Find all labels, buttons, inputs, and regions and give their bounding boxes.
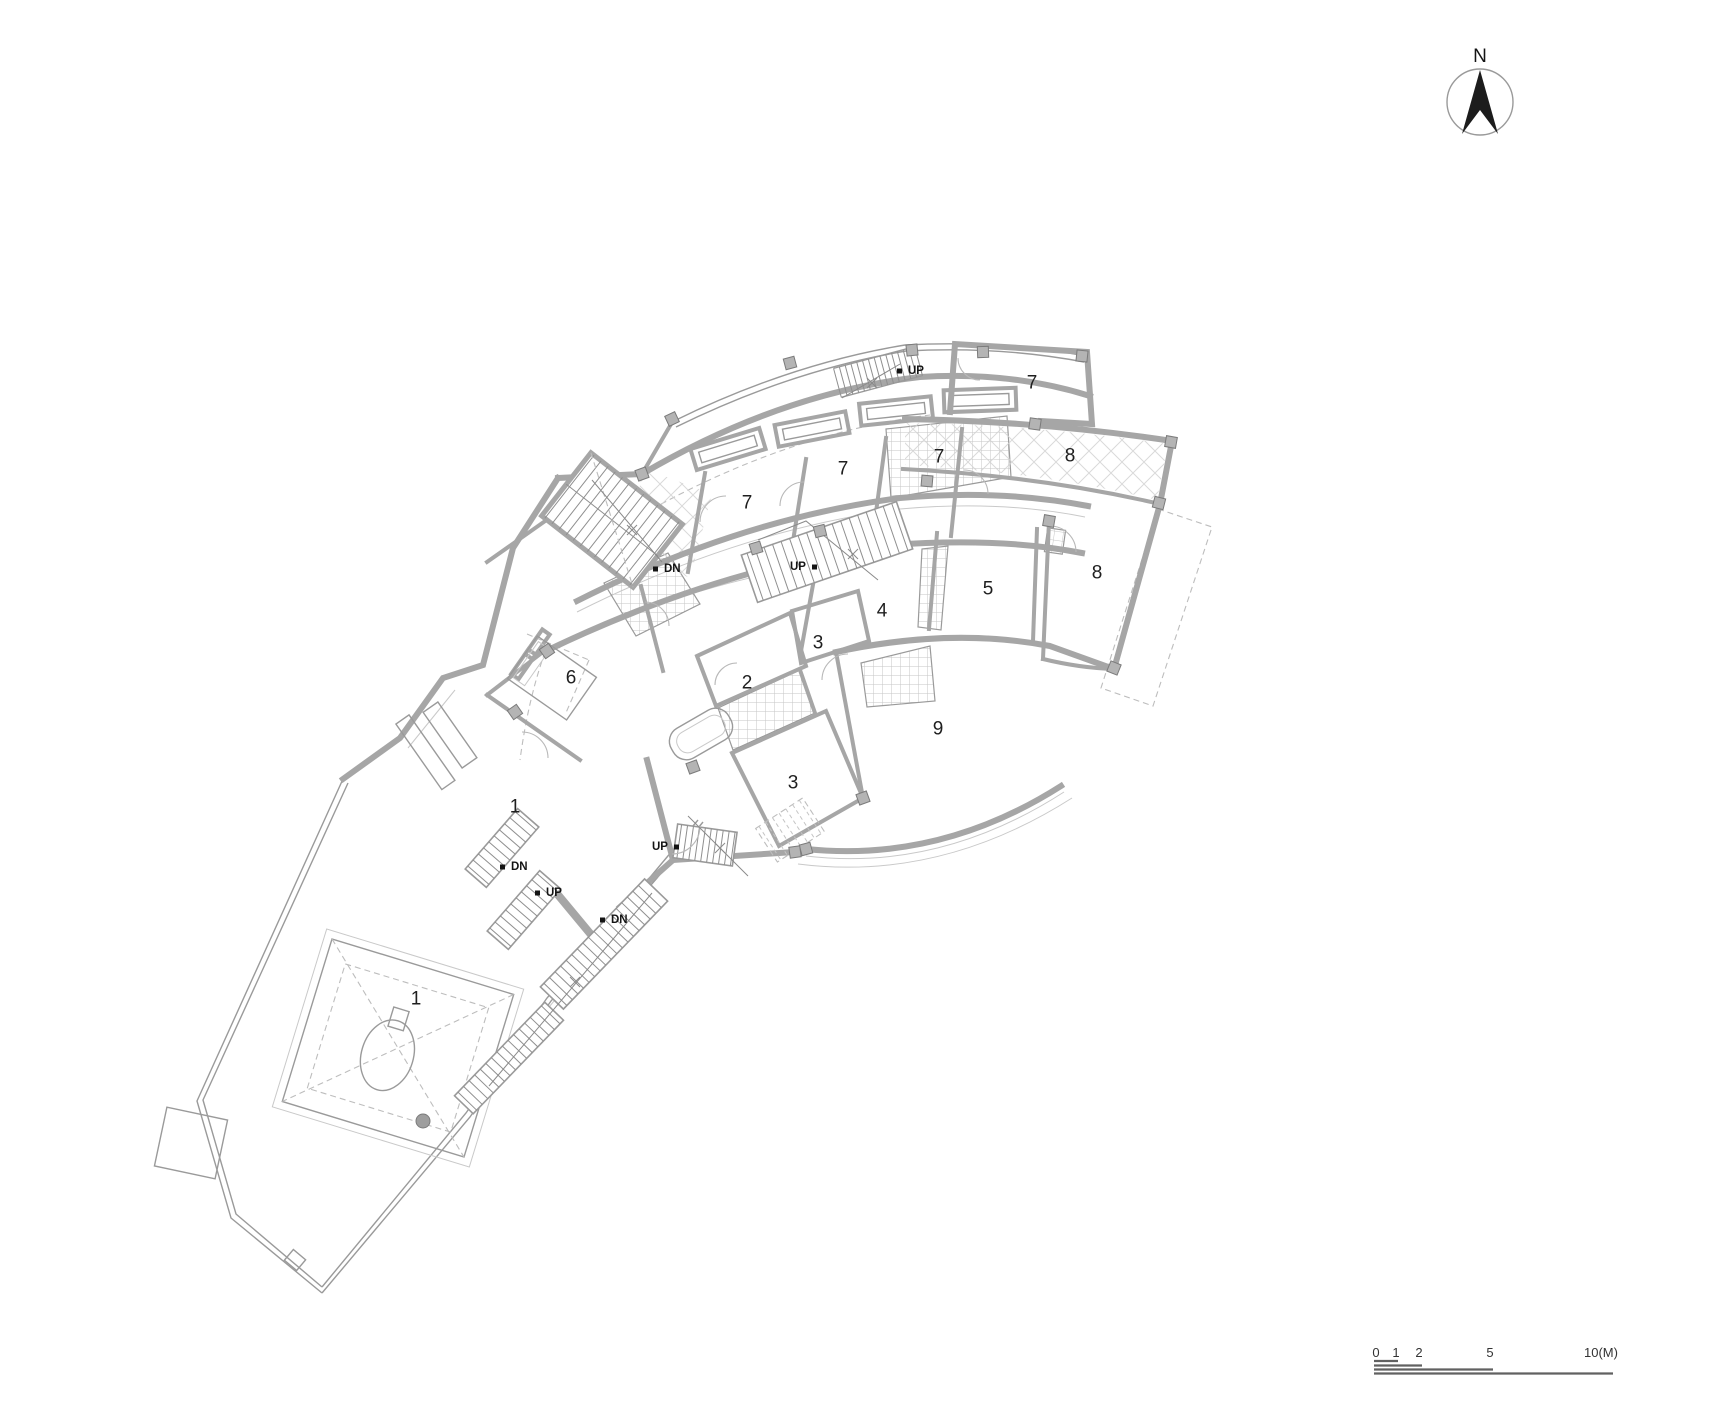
room-label-3: 3	[788, 773, 799, 794]
stair-label-dn: DN	[511, 861, 528, 873]
scale-label-5: 5	[1486, 1345, 1493, 1360]
stair-label-dn: DN	[664, 563, 681, 575]
stair-label-dot	[500, 865, 505, 870]
wing-terrace-deck	[272, 929, 523, 1167]
room-label-2: 2	[742, 673, 753, 694]
floor-plan-canvas: 777788543263911 UPDNUPUPDNUPDN N 012510(…	[0, 0, 1732, 1414]
stair-label-up: UP	[652, 841, 668, 853]
room-label-7: 7	[1027, 373, 1038, 394]
scale-bar-labels: 012510(M)	[1372, 1345, 1618, 1360]
room-label-1: 1	[510, 797, 521, 818]
north-compass: N	[1447, 46, 1513, 135]
room-label-6: 6	[566, 668, 577, 689]
scale-label-1: 1	[1392, 1345, 1399, 1360]
room-label-8: 8	[1065, 446, 1076, 467]
stair-bottom-central	[673, 824, 737, 866]
stair-label-dn: DN	[611, 914, 628, 926]
room-label-8: 8	[1092, 563, 1103, 584]
room-label-7: 7	[934, 447, 945, 468]
north-label: N	[1473, 46, 1487, 67]
stair-left-lower	[487, 871, 561, 950]
site-boundary	[154, 779, 703, 1293]
stair-label-dot	[535, 891, 540, 896]
room-label-3: 3	[813, 633, 824, 654]
terrace-column	[416, 1114, 430, 1128]
stair-label-dot	[653, 567, 658, 572]
stair-label-dot	[600, 918, 605, 923]
stair-label-up: UP	[908, 365, 924, 377]
room-label-7: 7	[742, 493, 753, 514]
stair-label-up: UP	[790, 561, 806, 573]
stair-label-dot	[674, 845, 679, 850]
scale-bar: 012510(M)	[1372, 1345, 1618, 1374]
scale-label-2: 2	[1415, 1345, 1422, 1360]
stair-label-dot	[897, 369, 902, 374]
room-label-5: 5	[983, 579, 994, 600]
room-label-7: 7	[838, 459, 849, 480]
floor-plan-page: 777788543263911 UPDNUPUPDNUPDN N 012510(…	[0, 0, 1732, 1414]
scale-label-10(M): 10(M)	[1584, 1345, 1618, 1360]
north-arrow-icon	[1462, 70, 1498, 134]
room-label-1: 1	[411, 989, 422, 1010]
stair-wing-lower	[454, 1002, 563, 1114]
scale-label-0: 0	[1372, 1345, 1379, 1360]
stair-label-up: UP	[546, 887, 562, 899]
stair-left-upper	[465, 809, 539, 888]
room-label-9: 9	[933, 719, 944, 740]
stair-corridor	[741, 502, 912, 603]
stair-label-dot	[812, 565, 817, 570]
room-label-4: 4	[877, 601, 888, 622]
